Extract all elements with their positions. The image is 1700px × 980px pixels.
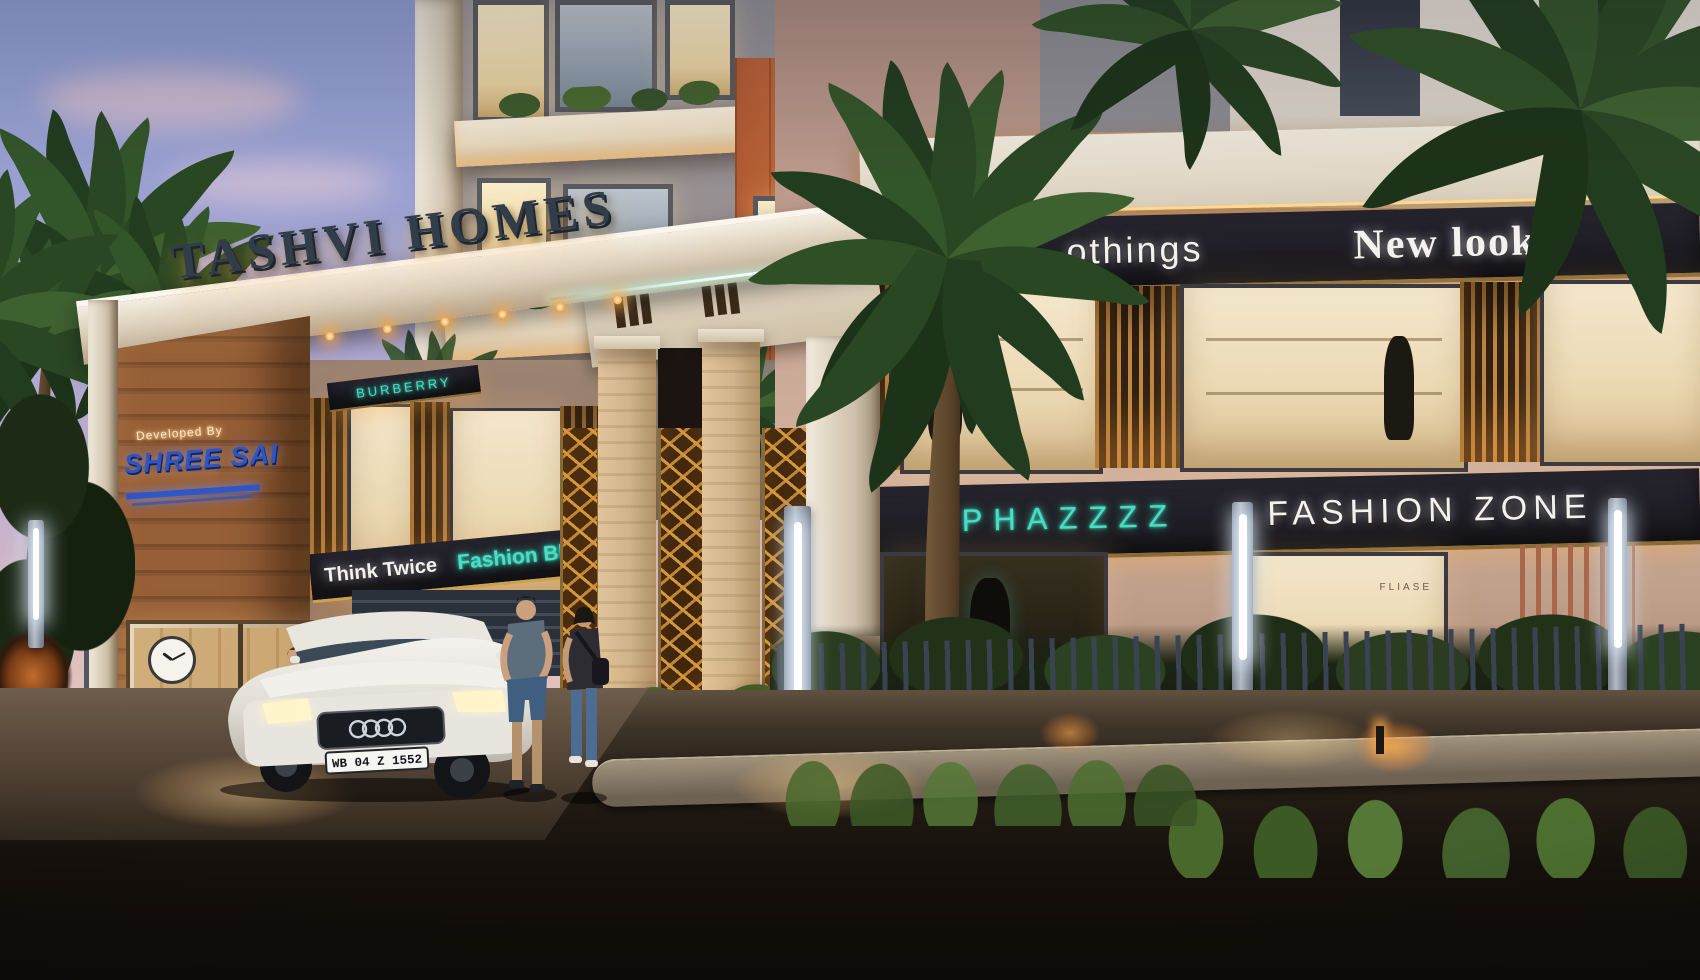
bollard-light-strip xyxy=(1614,510,1622,648)
bollard-light xyxy=(28,520,44,648)
pedestrians xyxy=(492,590,620,808)
architectural-dusk-render: othings New look PHAZZZZ FASHION ZONE FL… xyxy=(0,0,1700,980)
man-figure xyxy=(504,596,549,792)
bollard-light-strip xyxy=(33,528,39,620)
car-grille xyxy=(317,707,445,750)
bollard-light-strip xyxy=(1239,514,1247,660)
ornamental-grass xyxy=(1140,688,1700,878)
bollard-light xyxy=(1608,498,1627,694)
woman-figure xyxy=(566,607,610,767)
car-mirror xyxy=(290,656,300,663)
ornamental-grass xyxy=(770,706,1200,826)
bollard-light-strip xyxy=(794,522,802,704)
bollard-light xyxy=(1232,502,1253,708)
